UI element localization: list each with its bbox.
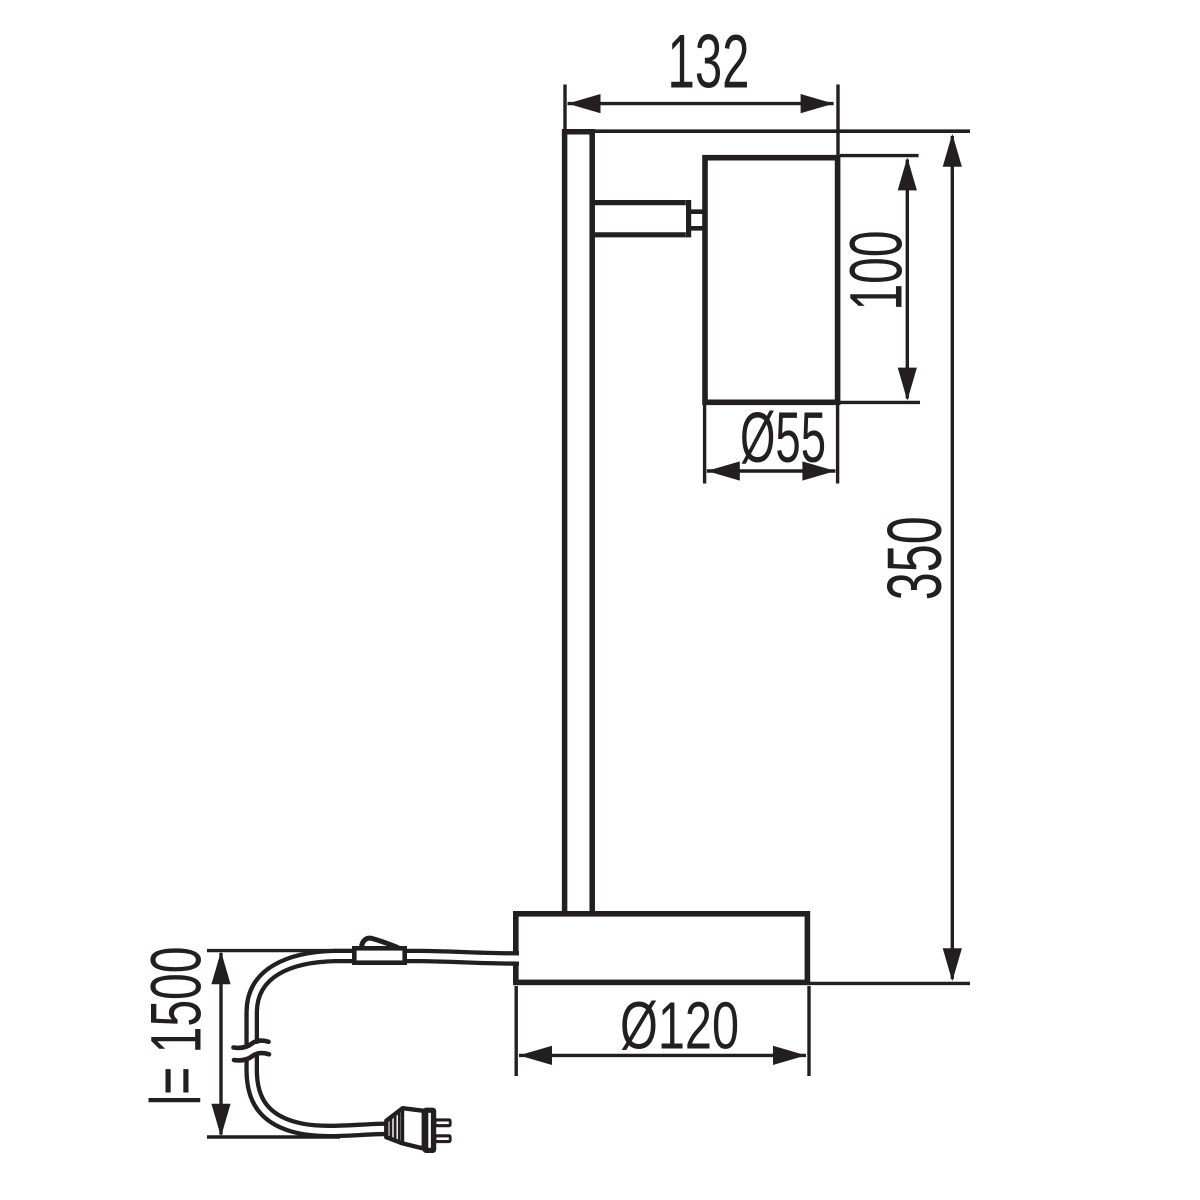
svg-text:132: 132 [668, 20, 750, 105]
svg-text:350: 350 [872, 516, 958, 600]
svg-text:l= 1500: l= 1500 [138, 947, 217, 1106]
svg-text:Ø55: Ø55 [740, 399, 826, 478]
svg-text:100: 100 [835, 231, 918, 311]
svg-text:Ø120: Ø120 [620, 989, 739, 1064]
